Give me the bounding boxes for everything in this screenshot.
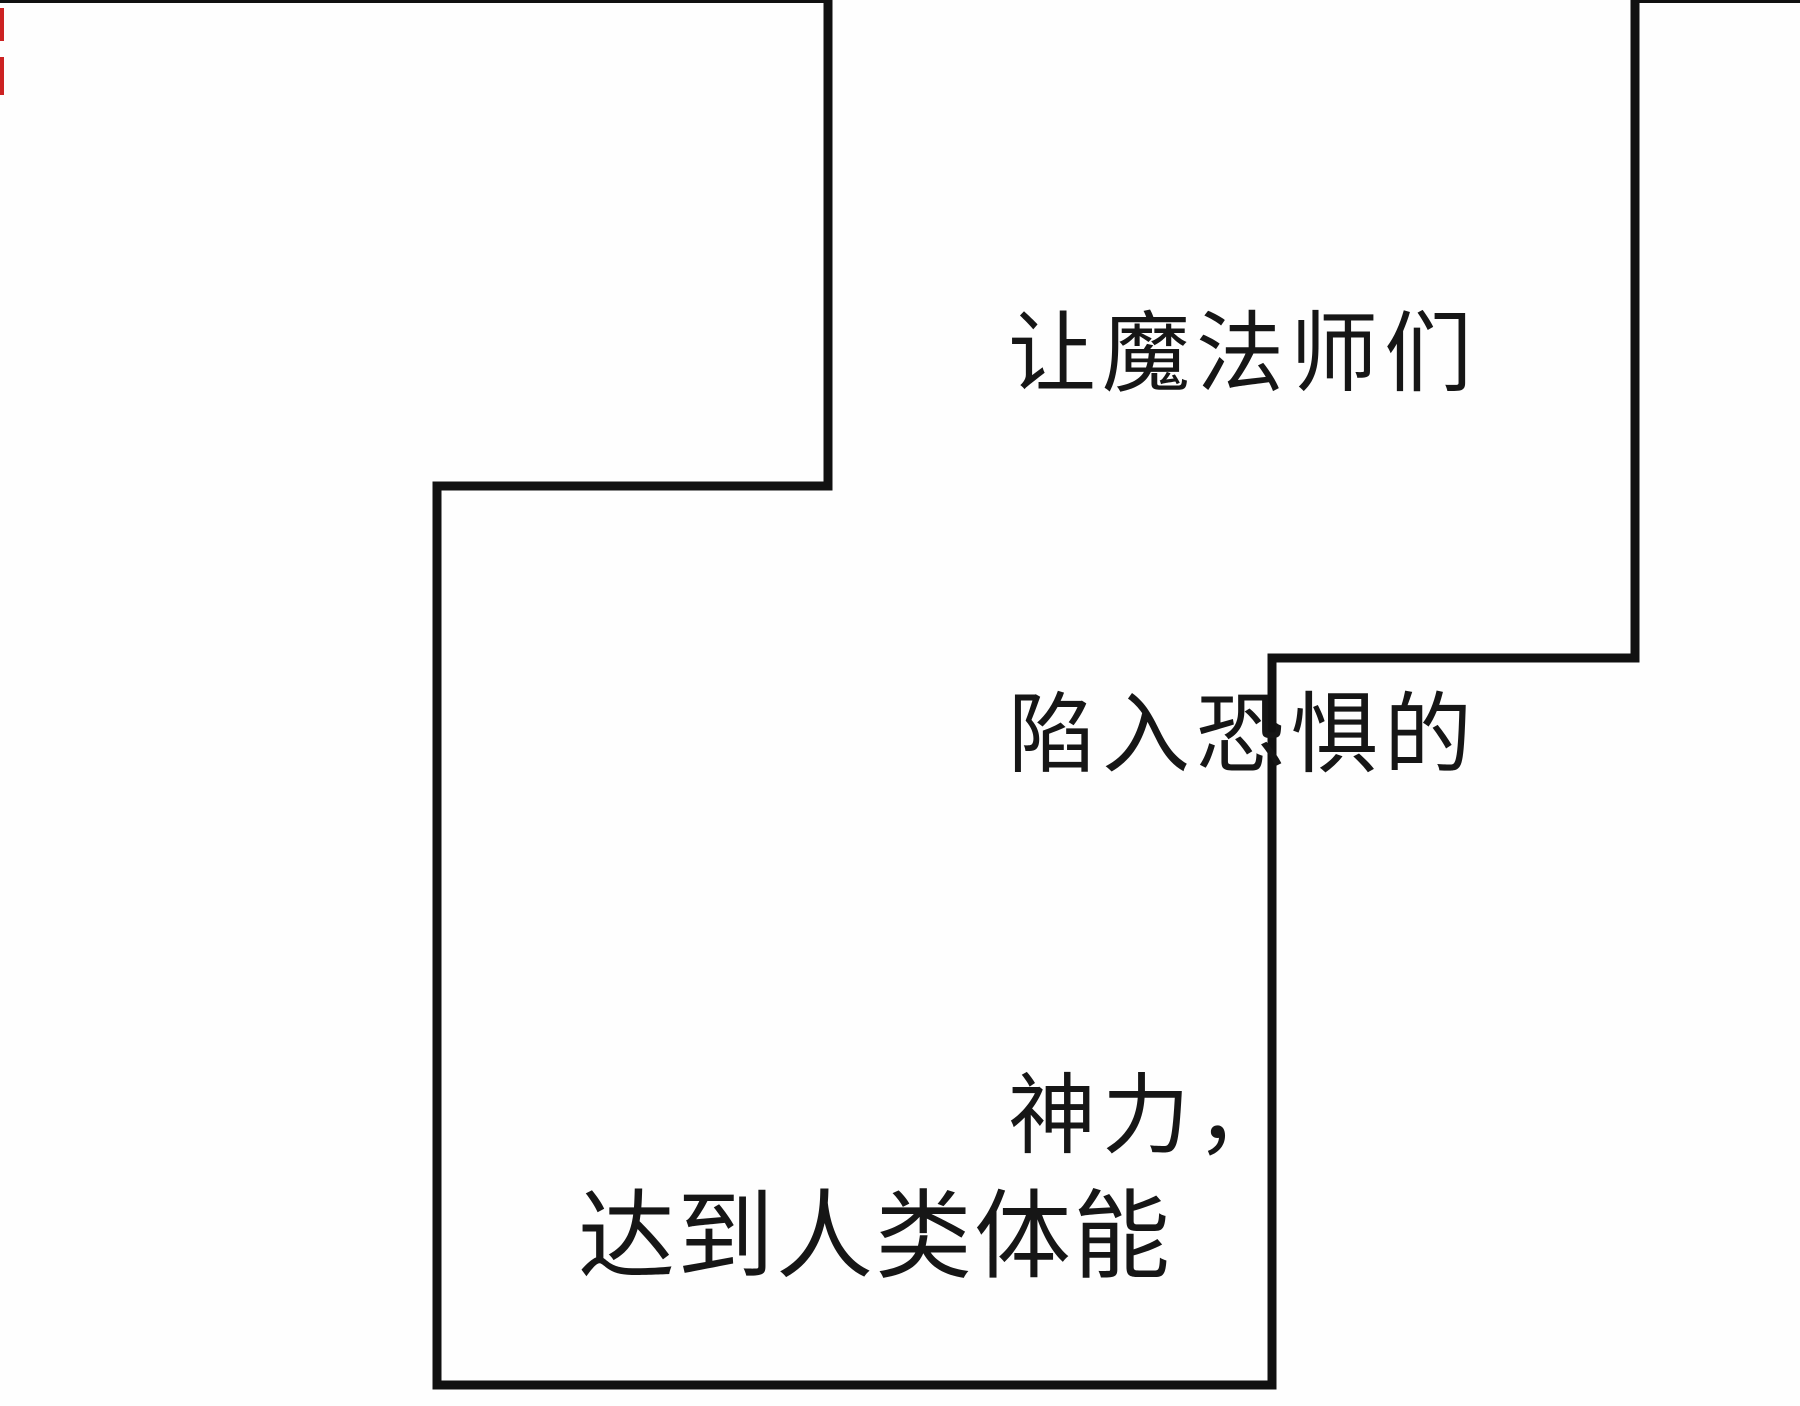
bottom-panel-dialogue: 达到人类体能 的顶端。 xyxy=(578,862,1172,1406)
red-edge-mark-lower xyxy=(0,57,4,95)
dialogue-line: 让魔法师们 xyxy=(1008,290,1478,417)
dialogue-line: 达到人类体能 xyxy=(578,1162,1172,1312)
dialogue-line: 陷入恐惧的 xyxy=(1008,671,1478,798)
red-edge-mark-upper xyxy=(0,8,4,41)
comic-page: 让魔法师们 陷入恐惧的 神力， 达到人类体能 的顶端。 xyxy=(0,0,1800,1406)
